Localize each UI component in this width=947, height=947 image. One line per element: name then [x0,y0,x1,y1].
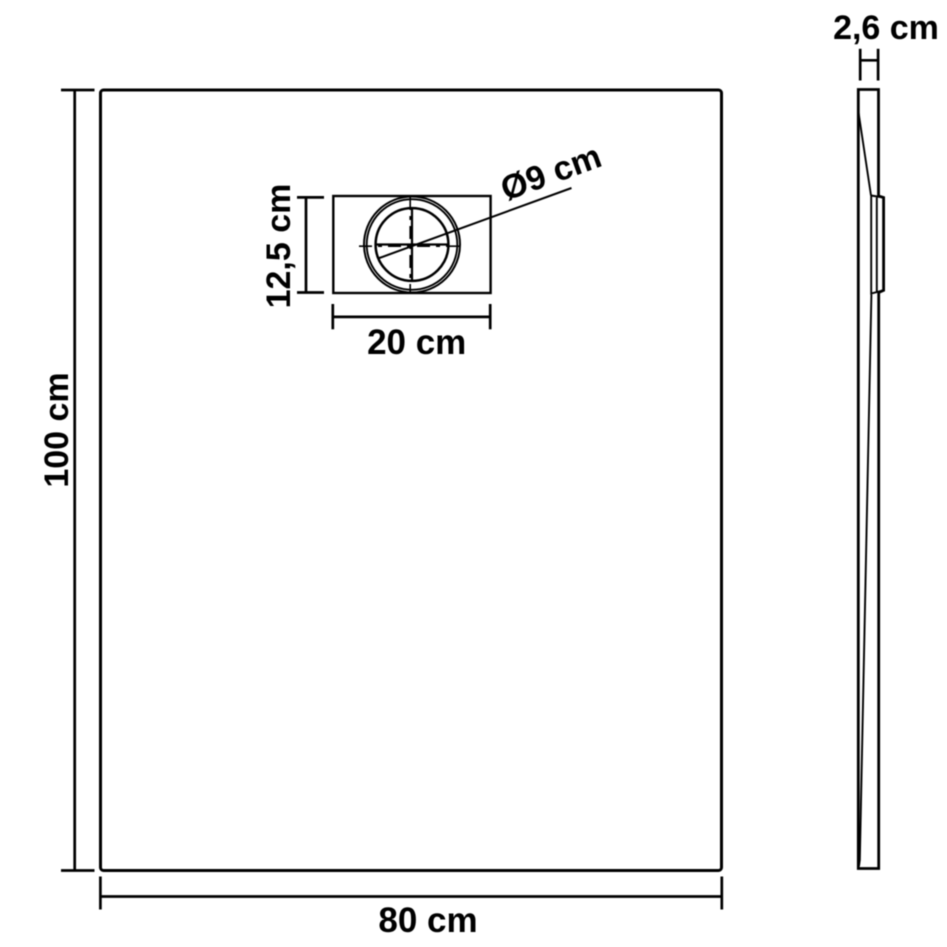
svg-text:2,6 cm: 2,6 cm [833,9,939,47]
svg-text:80 cm: 80 cm [378,901,477,940]
svg-text:12,5 cm: 12,5 cm [260,184,298,309]
svg-text:100 cm: 100 cm [38,372,76,487]
svg-text:20 cm: 20 cm [367,323,466,362]
